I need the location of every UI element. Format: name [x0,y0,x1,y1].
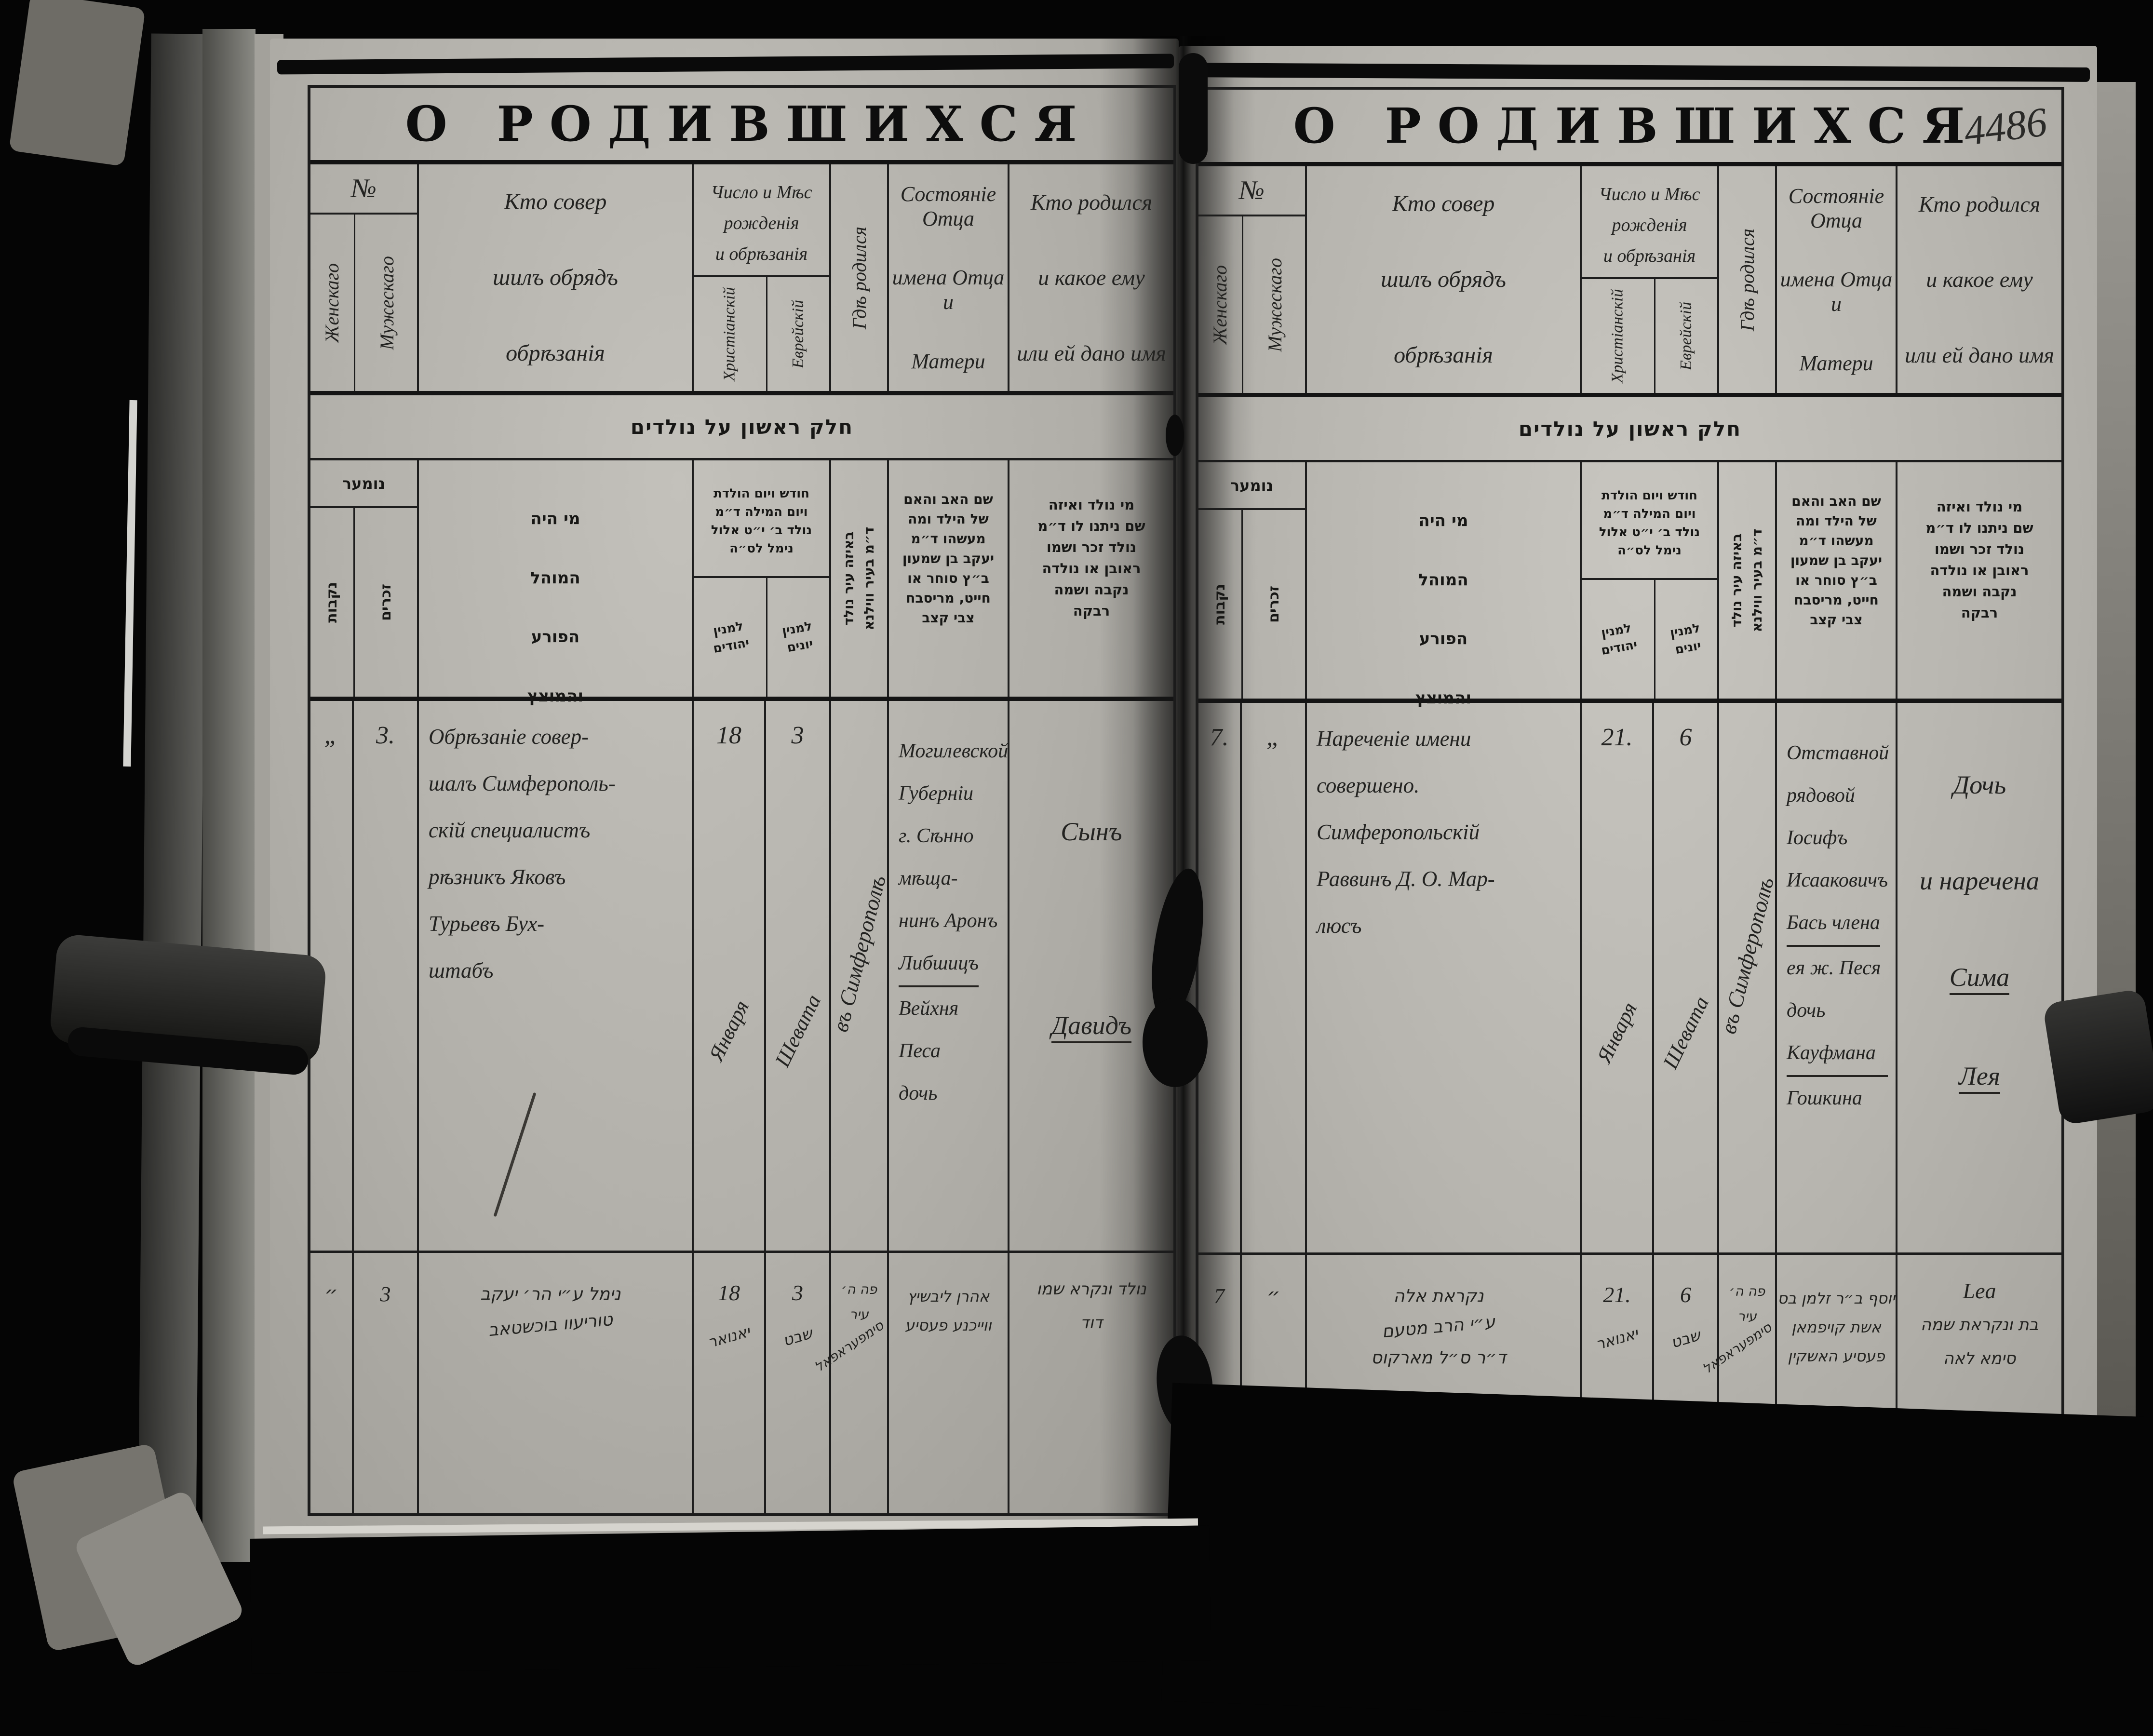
number-column-group: № Женскаго Мужескаго [310,164,419,391]
ink-smear [1179,53,1208,164]
hebrew-male-header: זכרים [355,508,417,697]
jewish-date-cell: 3 שבט [766,1253,831,1513]
photo-canvas: { "titles": { "main": "О РОДИВШИХСЯ", "p… [0,0,2153,1652]
hebrew-gentile-count-header: למניןיונים [767,578,829,697]
right-hebrew-header: נומער נקבות זכרים מי היההמוהלהפורעוהמוצץ… [1198,462,2061,703]
jewish-date-cell: 3 Шевата [766,701,831,1251]
christian-date-header: Христіанскій [694,277,767,391]
male-number-cell: 3 [354,1253,419,1513]
hebrew-date-group: חודש ויום הולדתויום המילה ד״מנולד ב׳ י״ט… [694,460,831,697]
right-clamp [2042,988,2153,1126]
hebrew-father-header: שם האב והאםשל הילד ומהמעשהו ד״מיעקב בן ש… [889,460,1009,697]
hebrew-child-header: מי נולד ואיזהשם ניתנו לו ד״מנולד זכר ושמ… [1897,462,2061,699]
hebrew-jewish-count-header: למניןיהודים [694,578,767,697]
hebrew-date-header: חודש ויום הולדתויום המילה ד״מנולד ב׳ י״ט… [694,460,829,578]
jewish-date-header: Еврейскій [1655,279,1717,393]
jewish-date-header: Еврейскій [767,277,829,391]
left-hebrew-band: חלק ראשון על נולדים [310,395,1173,460]
where-born-cell: פה ה׳עירסימפעראפאל [831,1253,889,1513]
hebrew-section-title: חלק ראשון על נולדים [631,415,853,439]
number-header: № [1198,166,1305,216]
left-russian-header: № Женскаго Мужескаго Кто совершилъ обряд… [310,164,1173,395]
right-russian-header: № Женскаго Мужескаго Кто совершилъ обряд… [1198,166,2061,397]
hebrew-gentile-count-header: למניןיונים [1655,580,1717,699]
number-header: № [310,164,417,215]
hebrew-section-title: חלק ראשון על נולדים [1519,417,1741,441]
hebrew-male-header: זכרים [1243,510,1305,699]
child-cell: נולד ונקרא שמודוד [1009,1253,1173,1513]
mohel-cell: נימל ע״י הר׳ יעקבטוריעוו בוכשטאב [419,1253,694,1513]
christian-date-cell: 21. Января [1582,703,1654,1252]
female-number-cell: 7. [1198,703,1242,1252]
right-page-title-row: О РОДИВШИХСЯ 4486 [1198,90,2061,166]
page-stack-edge [138,34,209,1553]
child-column-header: Кто родилсяи какое емуили ей дано имя [1897,166,2061,393]
ink-blot [1143,998,1208,1087]
hebrew-father-header: שם האב והאםשל הילד ומהמעשהו ד״מיעקב בן ש… [1777,462,1897,699]
christian-date-cell: 18 Января [694,701,766,1251]
left-record-row: „ 3. Обрѣзаніе совер-шалъ Симферополь-ск… [310,701,1173,1253]
date-column-group: Число и Мѣсрожденіяи обрѣзанія Христіанс… [1582,166,1719,393]
hebrew-date-header: חודש ויום הולדתויום המילה ד״מנולד ב׳ י״ט… [1582,462,1717,580]
mohel-cell: Нареченіе именисовершено.Симферопольскій… [1307,703,1582,1252]
child-cell: СынъДавидъ [1009,701,1173,1251]
male-number-header: Мужескаго [355,215,418,391]
jewish-date-cell: 6 Шевата [1654,703,1719,1252]
hebrew-female-header: נקבות [310,508,355,697]
father-cell: Отставнойрядовой ІосифъИсааковичъБась чл… [1777,703,1897,1252]
page-corner-scrap [9,0,146,166]
right-record-row: 7. „ Нареченіе именисовершено.Симферопол… [1198,703,2061,1255]
right-page-table: О РОДИВШИХСЯ 4486 № Женскаго Мужескаго К… [1196,87,2064,1518]
where-born-cell: въ Симферополѣ [831,701,889,1251]
hebrew-where-header: באיזה עיר נולדד״מ בעיר ווילנא [831,460,889,697]
mohel-column-header: Кто совершилъ обрядъобрѣзанія [419,164,694,391]
father-column-header: Состояніе Отцаимена Отца иМатери [889,164,1009,391]
christian-date-header: Христіанскій [1582,279,1655,393]
male-number-cell: „ [1242,703,1307,1252]
left-page-table: О РОДИВШИХСЯ № Женскаго Мужескаго Кто со… [308,85,1176,1516]
mohel-column-header: Кто совершилъ обрядъобрѣзанія [1307,166,1582,393]
female-number-header: Женскаго [310,215,355,391]
shadow-wedge-right-bottom [1161,1383,2153,1736]
right-hebrew-band: חלק ראשון על נולדים [1198,397,2061,462]
folio-number: 4486 [1962,97,2050,155]
left-page-title-row: О РОДИВШИХСЯ [310,88,1173,164]
hebrew-female-header: נקבות [1198,510,1243,699]
father-column-header: Состояніе Отцаимена Отца иМатери [1777,166,1897,393]
child-column-header: Кто родилсяи какое емуили ей дано имя [1009,164,1173,391]
child-cell: Дочьи нареченаСимаЛея [1897,703,2061,1252]
date-group-header: Число и Мѣсрожденіяи обрѣзанія [694,164,829,277]
female-number-cell: ״ [310,1253,354,1513]
left-yiddish-row: ״ 3 נימל ע״י הר׳ יעקבטוריעוו בוכשטאב 18 … [310,1253,1173,1513]
page-stack-highlight [123,400,137,767]
mohel-cell: Обрѣзаніе совер-шалъ Симферополь-скій сп… [419,701,694,1251]
christian-date-cell: 18 יאנואר [694,1253,766,1513]
fore-edge-right [2097,82,2136,1519]
ink-dot [1166,415,1184,456]
father-cell: МогилевскойГуберніиг. Сѣнно мѣща-нинъ Ар… [889,701,1009,1251]
where-born-cell: въ Симферополѣ [1719,703,1777,1252]
date-group-header: Число и Мѣсрожденіяи обрѣзанія [1582,166,1717,279]
hebrew-date-group: חודש ויום הולדתויום המילה ד״מנולד ב׳ י״ט… [1582,462,1719,699]
where-born-header: Гдѣ родился [831,164,889,391]
hebrew-number-header: נומער [1198,462,1305,510]
hebrew-where-header: באיזה עיר נולדד״מ בעיר ווילנא [1719,462,1777,699]
page-title: О РОДИВШИХСЯ [1279,97,1981,154]
where-born-header: Гдѣ родился [1719,166,1777,393]
male-number-cell: 3. [354,701,419,1251]
left-hebrew-header: נומער נקבות זכרים מי היההמוהלהפורעוהמוצץ… [310,460,1173,701]
page-stack-edge [202,29,256,1562]
hebrew-mohel-header: מי היההמוהלהפורעוהמוצץ [419,460,694,697]
page-title: О РОДИВШИХСЯ [391,95,1093,152]
number-column-group: № Женскаго Мужескаго [1198,166,1307,393]
male-number-header: Мужескаго [1243,216,1306,393]
hebrew-child-header: מי נולד ואיזהשם ניתנו לו ד״מנולד זכר ושמ… [1009,460,1173,697]
hebrew-number-group: נומער נקבות זכרים [310,460,419,697]
father-cell: אהרן ליבשיץווייכנע פעסיע [889,1253,1009,1513]
date-column-group: Число и Мѣсрожденіяи обрѣзанія Христіанс… [694,164,831,391]
hebrew-mohel-header: מי היההמוהלהפורעוהמוצץ [1307,462,1582,699]
hebrew-number-header: נומער [310,460,417,508]
female-number-header: Женскаго [1198,216,1243,393]
hebrew-jewish-count-header: למניןיהודים [1582,580,1655,699]
hebrew-number-group: נומער נקבות זכרים [1198,462,1307,699]
